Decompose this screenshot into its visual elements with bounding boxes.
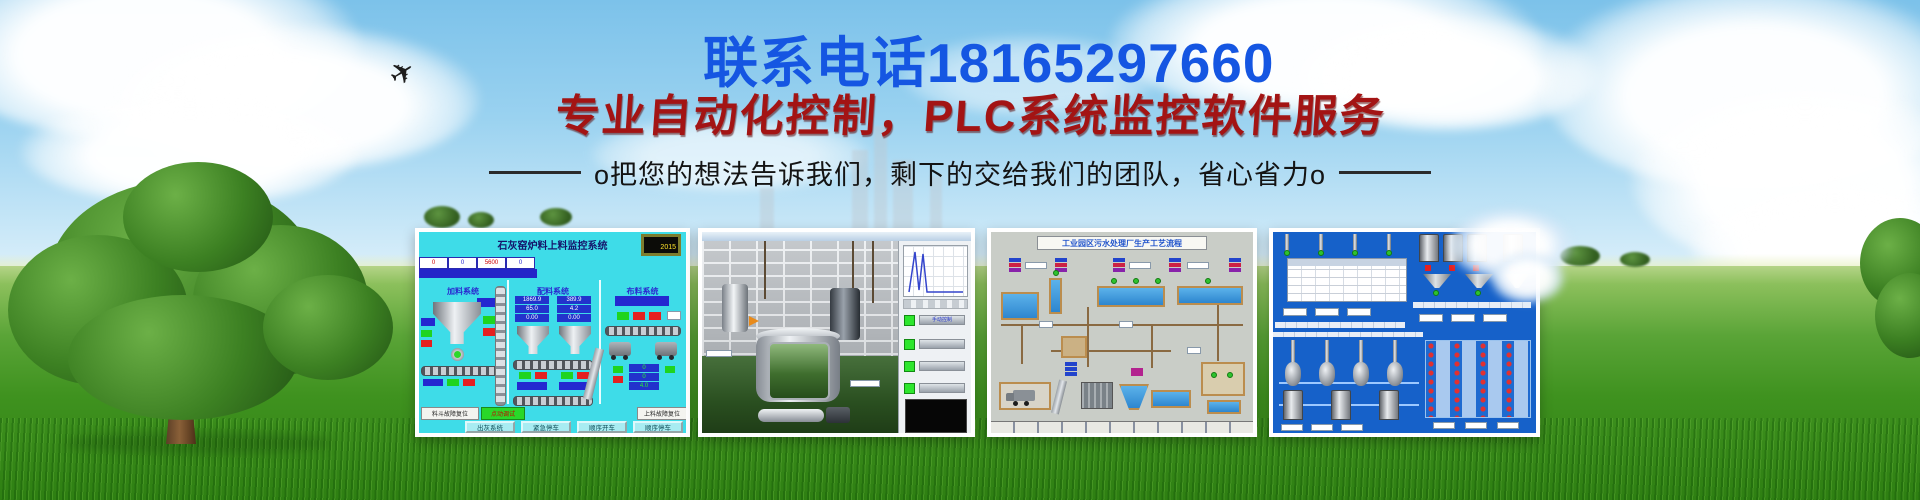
indicator-stack — [1009, 258, 1021, 272]
indicator-chip — [665, 366, 675, 373]
valve-icon — [1053, 270, 1059, 276]
valve-icon — [1133, 278, 1139, 284]
panel-button — [919, 383, 965, 393]
main-tank-glass — [768, 342, 830, 400]
hopper — [559, 326, 591, 354]
readout-display: 389.9 4.2 0.00 — [557, 296, 591, 322]
process-vessel — [1285, 362, 1301, 386]
data-table-panel — [1287, 258, 1407, 302]
tag-strip — [1275, 322, 1405, 328]
control-list-panel — [1425, 340, 1531, 418]
readout-display: 1869.9 65.0 0.00 — [515, 296, 549, 322]
readout-value: 0 — [629, 364, 659, 372]
flow-box — [1187, 347, 1201, 354]
feeder-tank — [722, 284, 748, 332]
readout-value: 65.0 — [515, 305, 549, 313]
tree — [8, 180, 408, 470]
indicator-chip — [617, 312, 629, 320]
header-value-cells: 0 0 5600 0 — [419, 257, 535, 269]
wall-label — [850, 380, 880, 387]
conveyor — [513, 396, 593, 406]
indicator-stack — [1169, 258, 1181, 272]
valve-assembly — [1319, 234, 1323, 251]
indicator-chip — [421, 330, 432, 337]
reset-button-right: 上料故障复位 — [637, 407, 687, 420]
tag-label — [1129, 262, 1151, 269]
distant-bush — [468, 212, 494, 228]
subtitle-row: o把您的想法告诉我们，剩下的交给我们的团队，省心省力o — [489, 153, 1431, 192]
filter-unit — [1081, 382, 1113, 409]
valve-icon — [1475, 290, 1481, 296]
pump-station — [1207, 400, 1241, 414]
ceiling-pipe — [872, 241, 874, 303]
steel-pipe — [1325, 340, 1329, 364]
trend-chart — [903, 245, 968, 297]
readout-value: 0.00 — [515, 314, 549, 322]
valve-assembly — [1285, 234, 1289, 251]
small-button — [1347, 308, 1371, 316]
screenshot-lime-kiln-hmi: 石灰窑炉料上料监控系统 2015 0 0 5600 0 加料系统 配料系统 布料… — [415, 228, 690, 437]
panel-button — [919, 361, 965, 371]
indicator-chip — [535, 372, 547, 379]
tag-label — [1187, 262, 1209, 269]
small-button — [1283, 308, 1307, 316]
clarifier-pool — [1177, 286, 1243, 305]
indicator-stack — [1113, 258, 1125, 272]
window-titlebar — [702, 232, 971, 241]
indicator-stack — [1229, 258, 1241, 272]
lime-kiln-background: 石灰窑炉料上料监控系统 2015 0 0 5600 0 加料系统 配料系统 布料… — [419, 232, 686, 433]
distant-bush — [424, 206, 460, 228]
indicator-stack — [1065, 362, 1077, 376]
diagram-title: 工业园区污水处理厂生产工艺流程 — [1037, 236, 1207, 250]
wall-label — [706, 350, 732, 357]
ceiling-pipe — [764, 241, 766, 299]
valve-icon — [1284, 250, 1290, 256]
process-pipe — [1217, 305, 1219, 361]
flow-box — [1119, 321, 1133, 328]
process-pipe — [1151, 324, 1153, 368]
reset-button-left: 料斗故障复位 — [421, 407, 479, 420]
valve-icon — [1386, 250, 1392, 256]
panel-button — [919, 339, 965, 349]
readout-value: 4.2 — [557, 305, 591, 313]
subtitle-line-left — [489, 171, 581, 174]
hero-banner: ✈ 联系电话18165297660 专业自动化控制，PLC系统监控软件服务 o把… — [0, 0, 1920, 500]
indicator-chip — [615, 296, 669, 306]
distant-bush — [540, 208, 572, 226]
flow-box — [1039, 321, 1053, 328]
tag-label — [1025, 262, 1047, 269]
footer-button: 紧急停车 — [521, 421, 571, 433]
pump-body — [758, 409, 824, 422]
distribution-cart — [609, 342, 631, 356]
indicator-chip — [561, 372, 573, 379]
footer-button: 顺序停车 — [633, 421, 683, 433]
readout-value: 0.00 — [557, 314, 591, 322]
message-display — [905, 399, 967, 433]
section-divider — [507, 280, 509, 404]
valve-icon — [1205, 278, 1211, 284]
valve-icon — [1227, 372, 1233, 378]
storage-silo — [1419, 234, 1439, 262]
steel-pipe — [1291, 340, 1295, 364]
indicator-chip — [517, 382, 547, 390]
valve-icon — [1211, 372, 1217, 378]
tree-canopy — [68, 295, 298, 420]
indicator-chip — [463, 379, 475, 386]
hopper — [517, 326, 549, 354]
effluent-pool — [1151, 390, 1191, 408]
sewage-plant-background: 工业园区污水处理厂生产工艺流程 — [991, 232, 1253, 433]
bucket-elevator — [495, 286, 506, 406]
status-lamp — [904, 339, 915, 350]
small-button — [1433, 422, 1455, 429]
dosing-hopper — [1119, 384, 1149, 410]
valve-assembly — [1353, 234, 1357, 251]
readout-display: 0 0 4.0 — [629, 364, 659, 390]
tree-canopy — [123, 162, 273, 272]
status-lamp — [904, 361, 915, 372]
steel-pipe — [1359, 340, 1363, 364]
intake-pool — [1001, 292, 1039, 320]
ceiling-pipe — [852, 241, 854, 289]
flow-arrow-icon — [749, 316, 759, 326]
valve-icon — [1433, 290, 1439, 296]
header-bar — [419, 269, 537, 278]
indicator-chip — [447, 379, 459, 386]
jog-test-button: 点动调试 — [481, 407, 525, 420]
subtitle-text: o把您的想法告诉我们，剩下的交给我们的团队，省心省力o — [594, 153, 1326, 192]
small-button — [1281, 424, 1303, 431]
indicator-chip — [421, 340, 432, 347]
small-button — [1451, 314, 1475, 322]
cloud — [1490, 252, 1565, 304]
weigh-hopper — [1423, 274, 1451, 288]
pump-motor — [826, 407, 850, 423]
valve-icon — [1318, 250, 1324, 256]
valve-icon — [1111, 278, 1117, 284]
valve-icon — [1352, 250, 1358, 256]
right-bush — [1850, 218, 1920, 358]
steel-pipe — [1393, 340, 1397, 364]
sludge-conveyor — [1051, 380, 1067, 415]
screenshot-sewage-plant-hmi: 工业园区污水处理厂生产工艺流程 — [987, 228, 1257, 437]
footer-button: 出灰系统 — [465, 421, 515, 433]
tag-strip — [1413, 302, 1531, 308]
small-button — [1341, 424, 1363, 431]
status-lamp — [904, 383, 915, 394]
screenshot-mixing-plant-hmi: 手动控制 — [698, 228, 975, 437]
clock-display: 2015 — [641, 234, 681, 256]
indicator-chip — [423, 379, 443, 386]
small-button — [1497, 422, 1519, 429]
aeration-pool — [1097, 286, 1165, 307]
trend-line — [904, 246, 967, 296]
tree-canopy — [263, 275, 393, 380]
indicator-chip — [613, 376, 623, 383]
conveyor — [605, 326, 681, 336]
footer-button: 顺序开车 — [577, 421, 627, 433]
value-cell: 0 — [506, 257, 535, 269]
subtitle-line-right — [1339, 171, 1431, 174]
value-cell: 5600 — [477, 257, 506, 269]
value-cell: 0 — [448, 257, 477, 269]
receiver-tank — [1283, 390, 1303, 420]
distribution-cart — [655, 342, 677, 356]
control-side-panel: 手动控制 — [898, 241, 972, 433]
process-vessel — [1353, 362, 1369, 386]
dewatering-unit — [1201, 362, 1245, 396]
readout-value: 389.9 — [557, 296, 591, 304]
alarm-marker — [1425, 265, 1431, 271]
lift-well — [1049, 278, 1062, 314]
small-button — [1419, 314, 1443, 322]
indicator-chip — [633, 312, 645, 320]
section-label-feed: 加料系统 — [419, 286, 507, 297]
conveyor — [513, 360, 593, 370]
conveyor — [421, 366, 503, 376]
receiver-tank — [1331, 390, 1351, 420]
hopper — [433, 302, 481, 344]
process-pipe — [1087, 307, 1089, 367]
sludge-truck — [1013, 390, 1035, 401]
mixing-plant-background: 手动控制 — [702, 232, 971, 433]
valve-icon — [1155, 278, 1161, 284]
valve-assembly — [1387, 234, 1391, 251]
readout-value: 1869.9 — [515, 296, 549, 304]
rotary-valve — [451, 348, 464, 361]
indicator-chip — [519, 372, 531, 379]
indicator-chip — [649, 312, 661, 320]
manual-control-button: 手动控制 — [919, 315, 965, 325]
chart-toolbar — [903, 299, 968, 309]
status-lamp — [904, 315, 915, 326]
indicator-chip — [613, 366, 623, 373]
divider-strip — [1273, 332, 1423, 337]
small-button — [1483, 314, 1507, 322]
process-pipe — [1021, 324, 1023, 364]
small-button — [1465, 422, 1487, 429]
process-vessel — [1319, 362, 1335, 386]
value-cell: 0 — [419, 257, 448, 269]
indicator-chip — [421, 318, 435, 326]
small-button — [1315, 308, 1339, 316]
indicator-chip — [667, 311, 681, 320]
main-headline: 专业自动化控制，PLC系统监控软件服务 — [554, 80, 1388, 144]
tree-shadow — [63, 432, 333, 454]
readout-value: 0 — [629, 373, 659, 381]
readout-value: 4.0 — [629, 382, 659, 390]
distant-bush — [1620, 252, 1650, 267]
indicator-chip — [1131, 368, 1143, 376]
receiver-tank — [1379, 390, 1399, 420]
bottom-button-strip — [991, 421, 1253, 433]
small-button — [1311, 424, 1333, 431]
process-vessel — [1387, 362, 1403, 386]
screen-unit — [1061, 336, 1087, 358]
alarm-marker — [1449, 265, 1455, 271]
section-divider — [599, 280, 601, 404]
